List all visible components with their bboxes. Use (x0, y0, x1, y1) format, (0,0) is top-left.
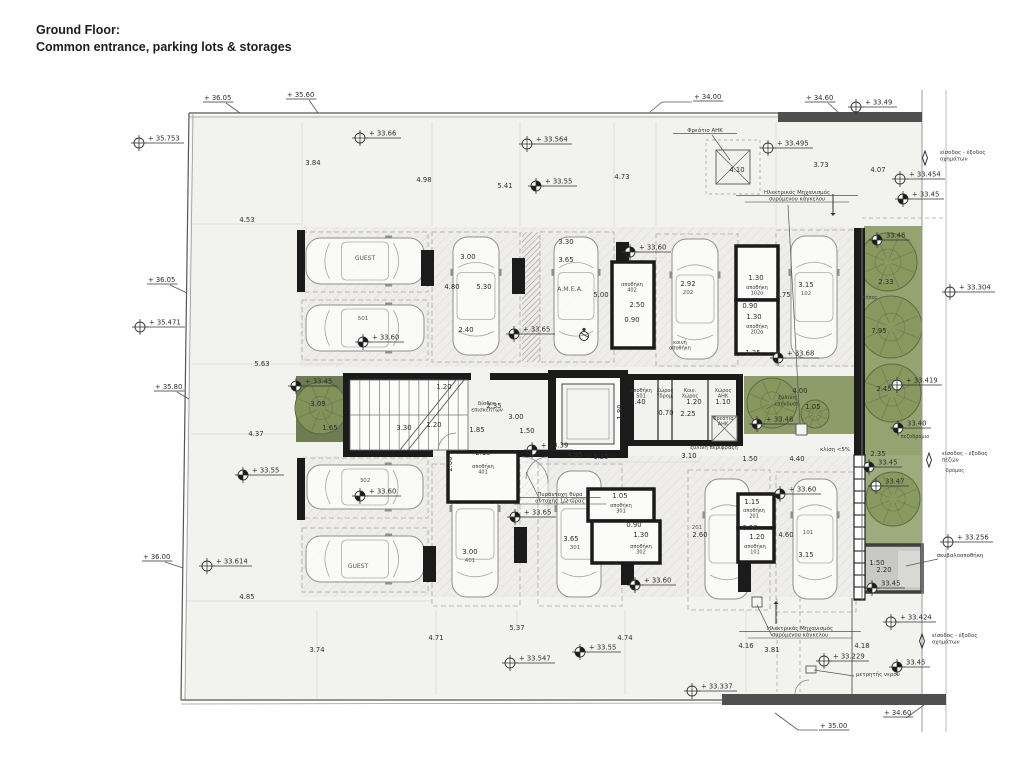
dimension-label: 4.40 (789, 455, 804, 463)
annotation-text: συρόμενου κάγκελου (772, 631, 828, 638)
elevation-value: + 33.564 (536, 136, 568, 144)
dimension-label: 3.10 (681, 452, 696, 460)
dimension-label: 3.65 (563, 535, 578, 543)
annotation-text: είσοδος - έξοδος (942, 450, 988, 457)
tree-icon (863, 364, 921, 422)
dimension-label: 3.00 (508, 413, 523, 421)
level-label (286, 99, 318, 113)
elevation-value: + 33.65 (524, 509, 551, 517)
dimension-label: 3.74 (309, 646, 324, 654)
level-value: + 35.00 (820, 722, 847, 730)
annotation-text: δίοδος (478, 400, 496, 407)
dimension-label: 4.80 (444, 283, 459, 291)
elevation-value: + 35.753 (148, 135, 180, 143)
dimension-label: 2.33 (878, 278, 893, 286)
dimension-label: 5.41 (497, 182, 512, 190)
elevation-value: + 33.55 (252, 467, 279, 475)
dimension-label: 3.73 (813, 161, 828, 169)
car (789, 236, 840, 358)
elevation-value: + 33.66 (369, 130, 396, 138)
parking-label: 401 (465, 558, 476, 564)
annotation-text: πεζών (942, 456, 959, 463)
level-label (203, 102, 240, 113)
elevation-value: + 33.547 (519, 655, 551, 663)
dimension-label: 1.50 (742, 455, 757, 463)
dimension-label: 2.60 (692, 531, 707, 539)
elevation-value: + 33.419 (906, 377, 938, 385)
dimension-label: 4.98 (416, 176, 431, 184)
dimension-label: 2.20 (876, 566, 891, 574)
wall (343, 373, 350, 457)
dimension-label: 0.70 (658, 409, 673, 417)
dimension-label: 1.30 (633, 531, 648, 539)
parking-label: 301 (570, 545, 581, 551)
level-value: + 34.60 (884, 709, 911, 717)
title-line-1: Ground Floor: (36, 22, 292, 39)
level-value: + 35.80 (155, 383, 182, 391)
dimension-label: 1.85 (469, 426, 484, 434)
vehicle-access-icon (927, 453, 932, 467)
room-label: 301 (616, 509, 626, 515)
annotation-text: είσοδος - έξοδος (940, 149, 986, 156)
elevation-value: + 33.55 (589, 644, 616, 652)
dimension-label: 5.63 (254, 360, 269, 368)
room-label: Χώρος (682, 393, 699, 400)
dimension-label: 4.10 (729, 166, 744, 174)
parking-label: 201 (692, 525, 703, 531)
dimension-label: 4.73 (614, 173, 629, 181)
room-label: 201 (749, 514, 759, 520)
annotation-text: σκυβαλοαποθήκη (937, 552, 984, 559)
page-title: Ground Floor: Common entrance, parking l… (36, 22, 292, 56)
dimension-label: 3.65 (558, 256, 573, 264)
parking-label: 102 (801, 291, 812, 297)
annotation-text: Ηλεκτρικός Μηχανισμός (764, 189, 830, 196)
room-label: 102α (751, 291, 765, 297)
dimension-label: 3.30 (396, 424, 411, 432)
parking-label: GUEST (355, 255, 376, 262)
room-label: 501 (636, 394, 646, 400)
elevation-value: 33.40 (907, 420, 926, 428)
room-label: 401 (478, 470, 488, 476)
elevation-value: + 33.65 (523, 326, 550, 334)
dimension-label: 2.35 (870, 450, 885, 458)
dimension-label: 3.00 (462, 548, 477, 556)
annotation-text: επισκεπτών (471, 406, 503, 413)
dimension-label: 4.60 (778, 531, 793, 539)
parking-label: GUEST (348, 563, 369, 570)
elevation-value: + 33.60 (369, 488, 396, 496)
vehicle-access-icon (923, 151, 928, 165)
elevation-value: + 33.256 (957, 534, 989, 542)
elevator-car (562, 384, 614, 444)
dimension-label: 0.90 (624, 316, 639, 324)
parking-label: 501 (358, 316, 369, 322)
wall (512, 258, 525, 294)
tree-icon (860, 296, 922, 358)
annotation-text: κλίση <5% (820, 446, 850, 453)
elevation-value: 33.45 (878, 459, 897, 467)
annotation-text: Πυράντοχη θύρα (537, 491, 583, 498)
wall (628, 374, 742, 380)
parking-label: 302 (360, 478, 371, 484)
dimension-label: 2.92 (680, 280, 695, 288)
annotation-text: αντοχής 1/2 ώρας (535, 497, 585, 504)
elevation-value: + 33.48 (766, 416, 793, 424)
level-label (154, 391, 189, 399)
elevation-value: + 33.495 (777, 140, 809, 148)
room-label: κήπος (862, 294, 877, 301)
wall (297, 458, 305, 520)
room-label: δρόμος (946, 467, 965, 474)
dimension-label: 1.65 (322, 424, 337, 432)
floor-plan-page: Ground Floor: Common entrance, parking l… (0, 0, 1024, 780)
level-value: + 35.60 (287, 91, 314, 99)
dimension-label: 3.84 (305, 159, 320, 167)
boundary-wall (722, 694, 946, 705)
car (791, 479, 840, 599)
dimension-label: 0.90 (742, 302, 757, 310)
level-label (147, 284, 187, 293)
plan-area (898, 551, 920, 587)
annotation-text: Ηλεκτρικός Μηχανισμός (767, 625, 833, 632)
annotation-text: οχημάτων (932, 638, 960, 645)
room-label: ΑΗΚ (718, 394, 729, 400)
dimension-label: 1.25 (745, 349, 760, 357)
equipment-box (806, 666, 816, 673)
elevation-value: + 33.68 (787, 350, 814, 358)
dimension-label: 3.09 (310, 400, 325, 408)
dimension-label: 1.15 (744, 498, 759, 506)
dimension-label: 4.00 (792, 387, 807, 395)
level-value: + 34.00 (694, 93, 721, 101)
elevation-value: + 33.60 (372, 334, 399, 342)
wall (423, 546, 436, 582)
room-label: Υδρομ. (655, 394, 674, 400)
wall (343, 373, 471, 380)
room-label: πεζοδρόμιο (901, 433, 930, 440)
dimension-label: 1.80 (616, 404, 624, 419)
dimension-label: 2.25 (680, 410, 695, 418)
elevation-value: + 33.454 (909, 171, 941, 179)
elevation-value: 33.45 (881, 580, 900, 588)
elevation-value: + 35.471 (149, 319, 181, 327)
elevation-value: + 33.45 (912, 191, 939, 199)
dimension-label: 1.05 (612, 492, 627, 500)
elevation-value: + 33.304 (959, 284, 991, 292)
wall (854, 228, 865, 455)
level-label (805, 102, 838, 112)
dimension-label: 3.00 (460, 253, 475, 261)
level-value: + 34.60 (806, 94, 833, 102)
level-label (142, 561, 183, 568)
elevation-value: + 33.424 (900, 614, 932, 622)
dimension-label: 2.00 (446, 456, 454, 471)
dimension-label: 5.37 (509, 624, 524, 632)
dimension-label: 1.20 (749, 533, 764, 541)
parking-label: 202 (683, 290, 694, 296)
dimension-label: 4.74 (617, 634, 632, 642)
dimension-label: 3.15 (798, 281, 813, 289)
boundary-line (181, 703, 722, 704)
elevation-value: + 33.60 (789, 486, 816, 494)
dimension-label: 4.18 (854, 642, 869, 650)
parking-label: 101 (803, 530, 814, 536)
level-value: + 36.05 (148, 276, 175, 284)
elevation-value: 33.47 (885, 478, 904, 486)
elevation-value: 33.46 (886, 232, 905, 240)
parking-label: A.M.E.A. (557, 286, 583, 293)
wall (343, 450, 433, 457)
dimension-label: 1.30 (748, 274, 763, 282)
room-label: 302 (636, 550, 646, 556)
elevation-value: + 33.60 (639, 244, 666, 252)
title-line-2: Common entrance, parking lots & storages (36, 39, 292, 56)
elevation-value: + 33.337 (701, 683, 733, 691)
dimension-label: 4.95 (567, 451, 582, 459)
car (306, 534, 424, 585)
elevation-value: + 33.39 (541, 442, 568, 450)
annotation-text: είσοδος - έξοδος (932, 632, 978, 639)
room-label: 101 (750, 550, 760, 556)
elevation-value: + 33.229 (833, 653, 865, 661)
storage-room (448, 452, 518, 502)
tree-icon (295, 382, 347, 434)
dimension-label: 2.50 (629, 301, 644, 309)
room-label: 402 (627, 288, 637, 294)
car (307, 463, 423, 512)
dimension-label: 1.20 (436, 383, 451, 391)
dimension-label: 4.37 (248, 430, 263, 438)
dimension-label: 4.53 (239, 216, 254, 224)
level-value: + 36.05 (204, 94, 231, 102)
dimension-label: 3.81 (764, 646, 779, 654)
dimension-label: 4.71 (428, 634, 443, 642)
dimension-label: 1.30 (746, 313, 761, 321)
level-label (650, 101, 723, 112)
wall (297, 230, 305, 292)
dimension-label: 2.45 (876, 385, 891, 393)
elevation-value: + 33.60 (644, 577, 671, 585)
dimension-label: 4.16 (738, 642, 753, 650)
wall (421, 250, 434, 286)
annotation-text: οχημάτων (940, 155, 968, 162)
dimension-label: 1.05 (805, 403, 820, 411)
elevation-value: 33.45 (906, 659, 925, 667)
equipment-box (796, 424, 807, 435)
elevation-value: + 33.49 (865, 99, 892, 107)
elevation-value: + 33.45 (305, 378, 332, 386)
elevation-value: + 33.55 (545, 178, 572, 186)
dimension-label: 2.15 (475, 449, 490, 457)
boundary-wall (778, 112, 922, 122)
annotation-text: μετρητής νερού (856, 671, 900, 678)
dimension-label: 0.90 (742, 524, 757, 532)
car (451, 237, 502, 355)
dimension-label: 2.40 (458, 326, 473, 334)
dimension-label: 5.00 (593, 291, 608, 299)
dimension-label: 3.30 (558, 238, 573, 246)
wall (514, 527, 527, 563)
room-label: ΑΗΚ (718, 422, 729, 428)
dimension-label: 5.30 (476, 283, 491, 291)
room-label: αποθήκη (669, 345, 691, 352)
dimension-label: 1.25 (593, 453, 608, 461)
dimension-label: 0.90 (626, 521, 641, 529)
annotation-text: επένδυση (774, 400, 799, 407)
dimension-label: 7.95 (871, 327, 886, 335)
room-label: 202α (751, 330, 765, 336)
wall (490, 373, 548, 380)
dimension-label: 3.15 (798, 551, 813, 559)
annotation-text: συρόμενου κάγκελου (769, 195, 825, 202)
dimension-label: 1.50 (519, 427, 534, 435)
annotation-text: Φρεάτιο ΑΗΚ (687, 127, 723, 134)
dimension-label: 4.07 (870, 166, 885, 174)
elevation-value: + 33.614 (216, 558, 248, 566)
floor-plan: + 35.753+ 33.66+ 33.564+ 33.495+ 33.49+ … (0, 0, 1024, 780)
annotation-text: ξύλινη (778, 394, 796, 401)
dimension-label: 1.20 (426, 421, 441, 429)
annotation-text: ξύλινη περίφραξη (690, 444, 738, 451)
ramp-hatch (522, 232, 540, 362)
dimension-label: 4.85 (239, 593, 254, 601)
level-value: + 36.00 (143, 553, 170, 561)
dimension-label: 5.75 (775, 291, 790, 299)
